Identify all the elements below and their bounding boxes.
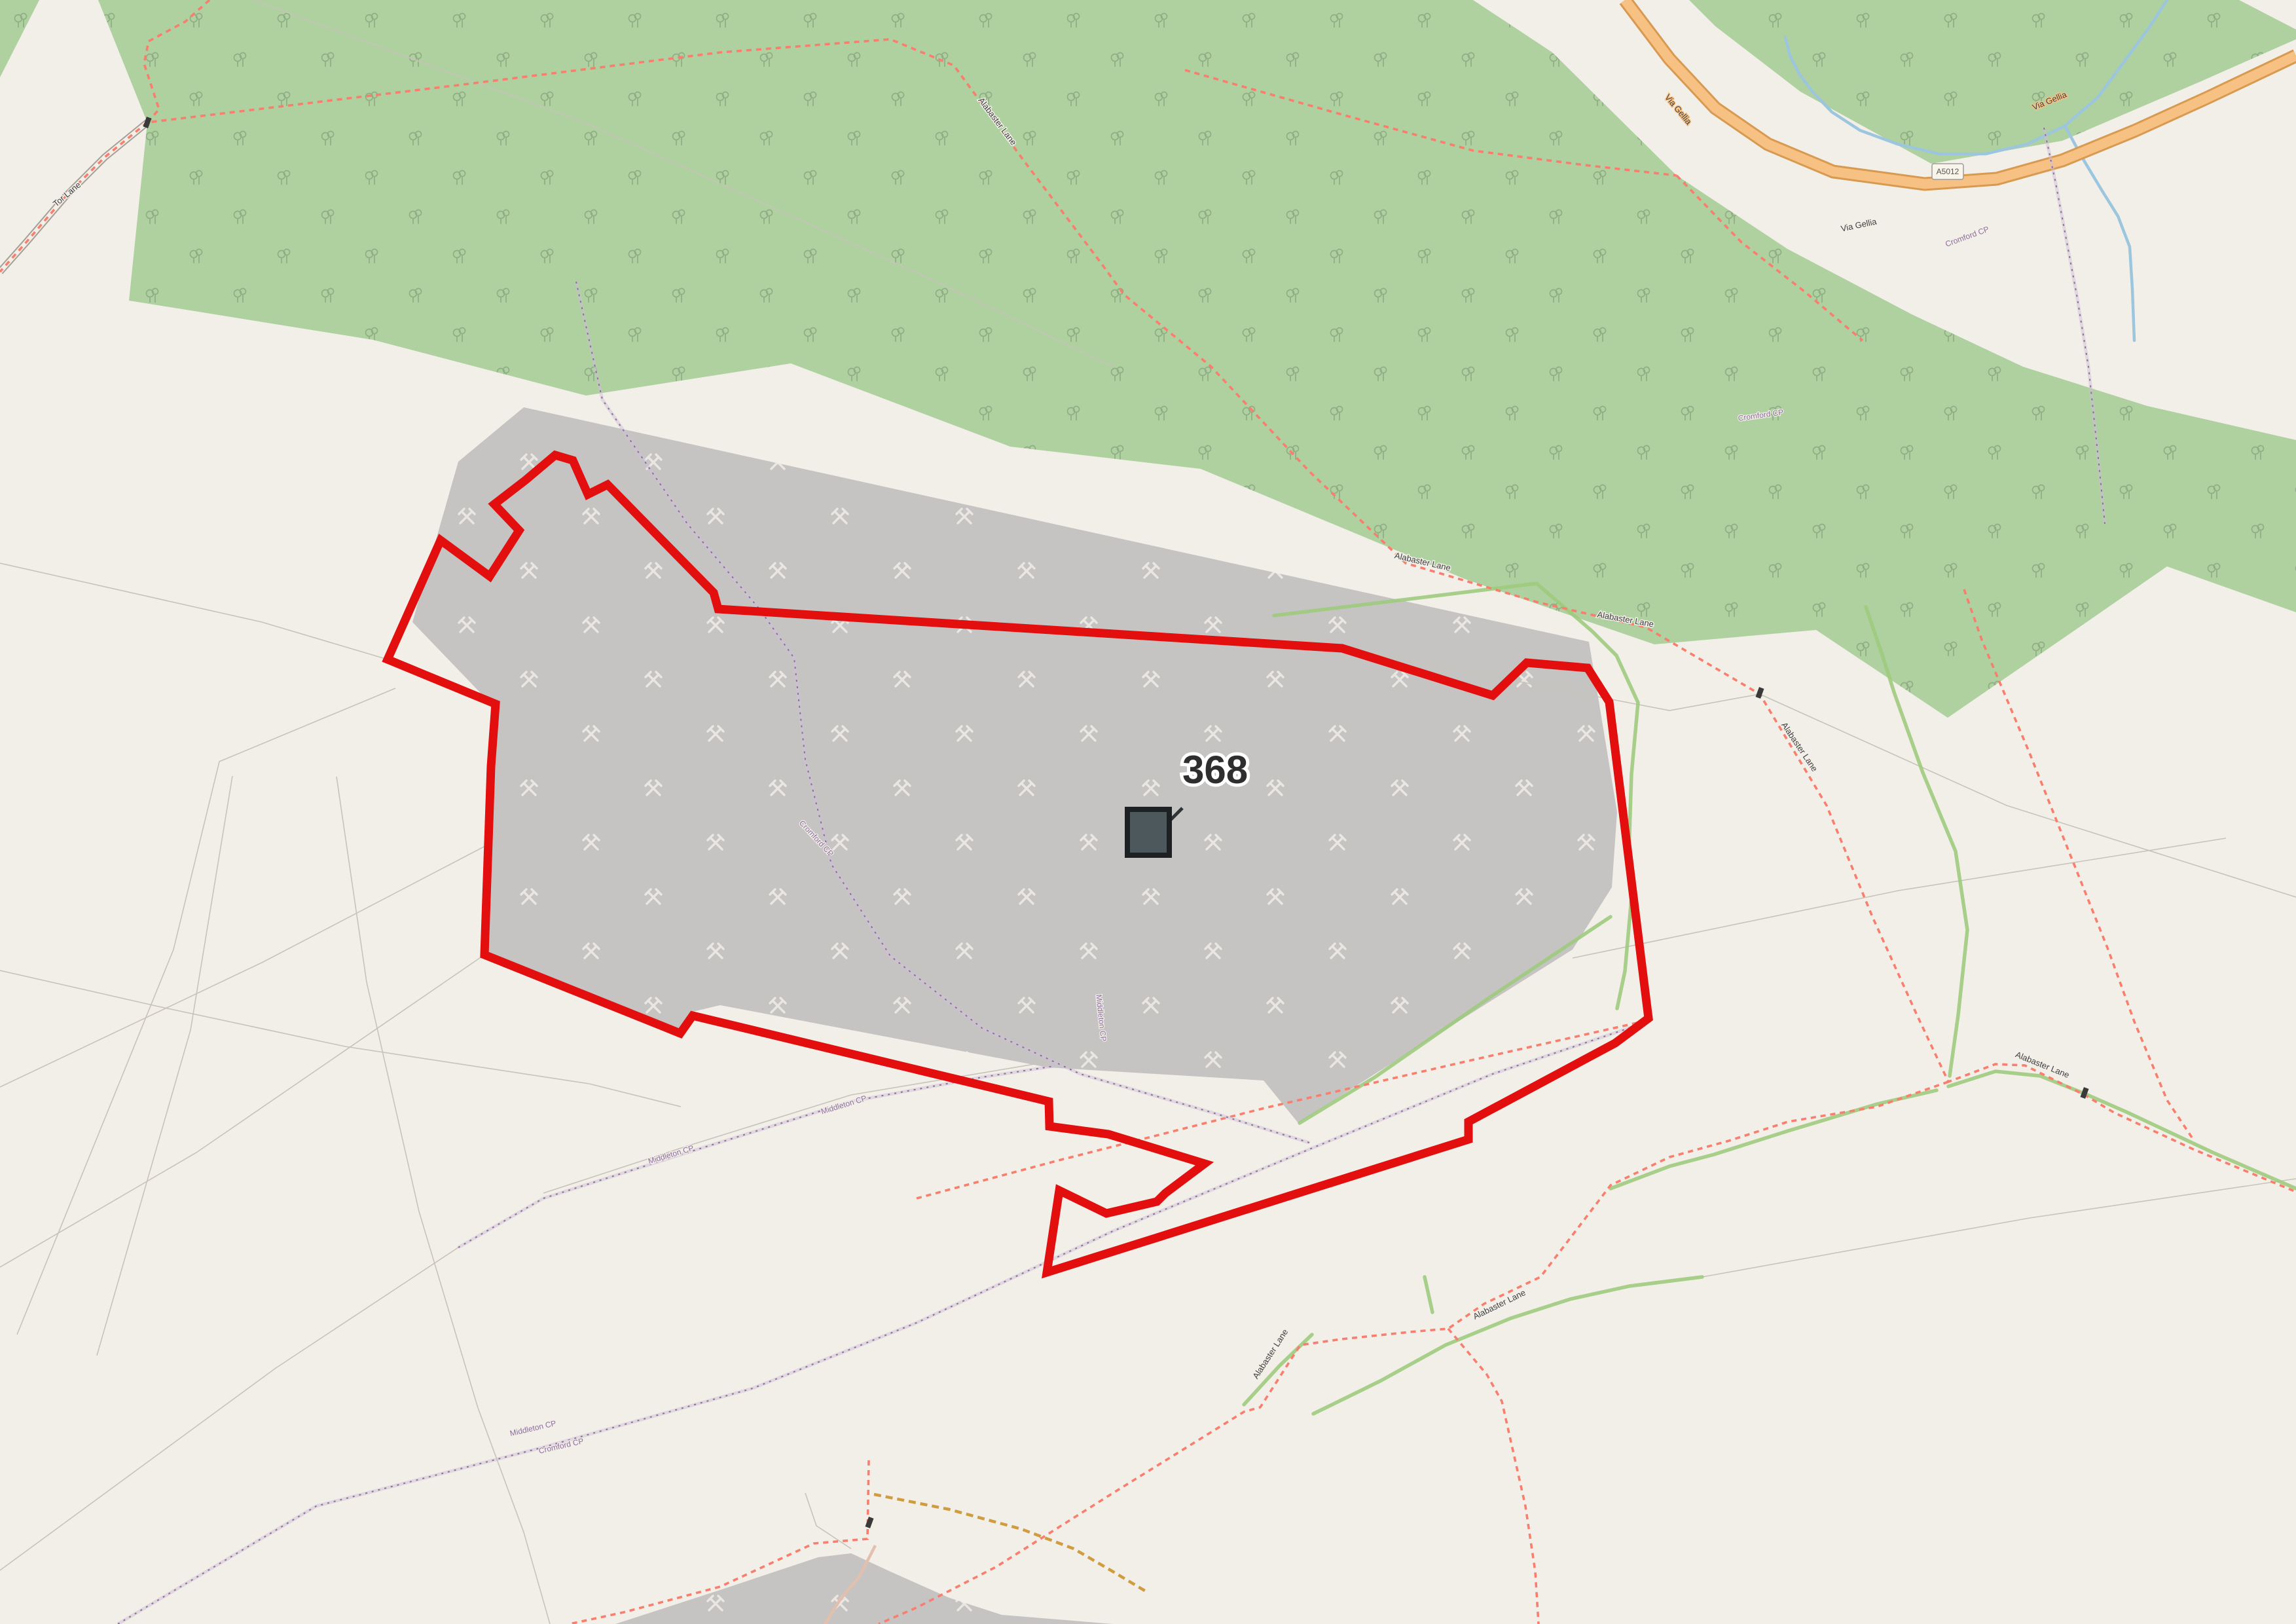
footpath-alabaster-sw [879, 1082, 1948, 1624]
lane-label: Via Gellia [1840, 216, 1878, 233]
lane-label: Tor Lane [51, 180, 82, 209]
forest-top-left [0, 0, 39, 77]
gate-icon [866, 1517, 874, 1528]
lane-label: Alabaster Lane [1779, 720, 1819, 773]
field-line [0, 845, 488, 1087]
quarry-south [615, 1553, 1113, 1624]
mine-marker-square[interactable] [1127, 809, 1169, 855]
field-line [0, 563, 388, 659]
parcel-number-label: 368 [1182, 748, 1248, 792]
parish-label: Cromford CP [1944, 225, 1990, 249]
bridleway-bottom [874, 1494, 1146, 1591]
forest-north-east [1689, 0, 2296, 164]
lane-label: Alabaster Lane [1250, 1327, 1290, 1381]
admin-boundary-middle-halo [458, 1066, 1054, 1247]
field-line [1702, 1179, 2296, 1277]
admin-boundary-south [118, 1022, 1649, 1624]
parish-label: Middleton CP [509, 1418, 556, 1438]
gate-icon [1756, 687, 1764, 699]
field-line [17, 688, 395, 1335]
admin-boundary-south-halo [118, 1022, 1649, 1624]
field-line [1573, 838, 2226, 958]
admin-boundary-middle [458, 1066, 1054, 1247]
hedge [1425, 1277, 1432, 1312]
footpath-south-branch [1448, 1329, 1539, 1624]
parish-label: Middleton CP [647, 1143, 695, 1166]
field-line [0, 955, 484, 1267]
road-shield-text: A5012 [1937, 167, 1959, 176]
lane-label: Via Gellia [1663, 92, 1694, 127]
hedge [1611, 1090, 1937, 1189]
field-line [1760, 694, 2296, 897]
map-svg: A5012 Alabaster LaneAlabaster LaneAlabas… [0, 0, 2296, 1624]
map-canvas[interactable]: A5012 Alabaster LaneAlabaster LaneAlabas… [0, 0, 2296, 1624]
field-line [97, 776, 232, 1356]
road-shield: A5012 [1932, 164, 1963, 179]
parish-label: Cromford CP [538, 1436, 584, 1455]
field-line [0, 1247, 458, 1570]
